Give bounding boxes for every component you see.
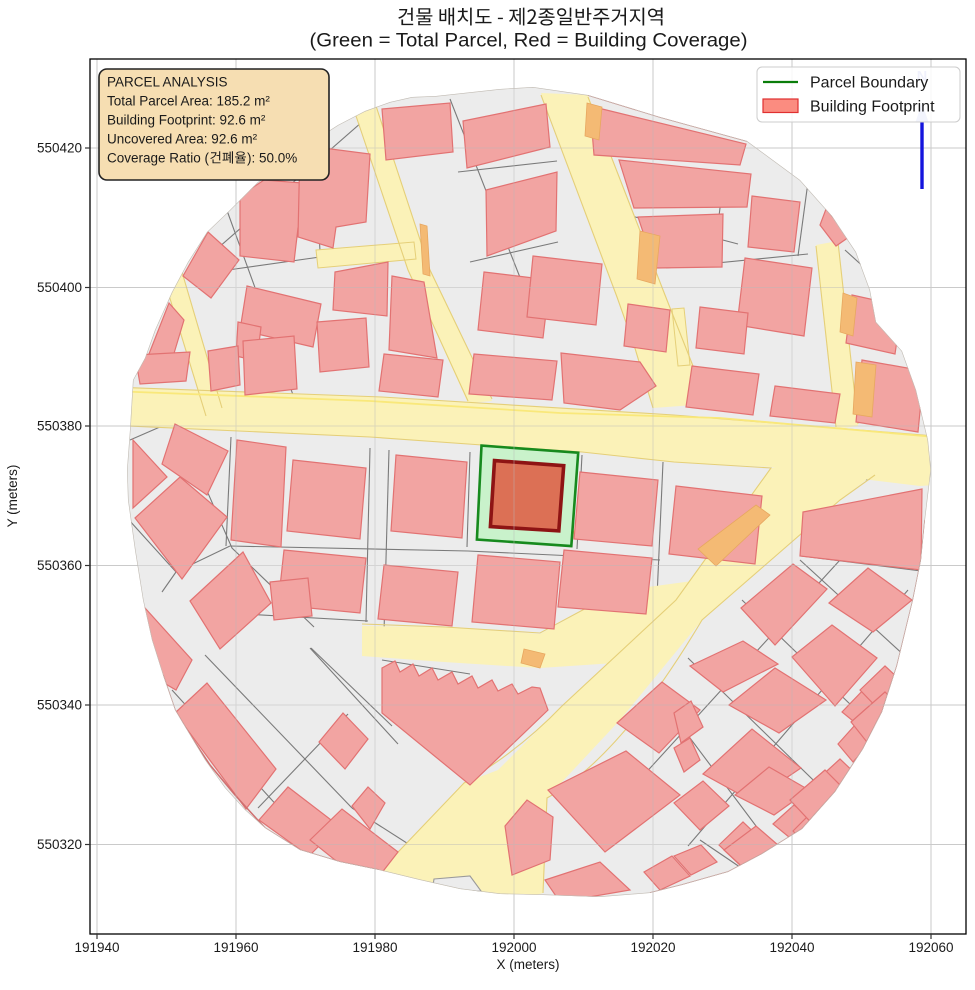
svg-text:550380: 550380 [37, 419, 82, 434]
svg-text:550320: 550320 [37, 837, 82, 852]
svg-text:Parcel Boundary: Parcel Boundary [810, 75, 928, 92]
svg-text:): 50.0%: ): 50.0% [247, 151, 297, 166]
svg-text:Y (meters): Y (meters) [5, 465, 20, 528]
svg-text:PARCEL ANALYSIS: PARCEL ANALYSIS [107, 75, 228, 90]
svg-text:X (meters): X (meters) [496, 957, 559, 972]
svg-text:192040: 192040 [769, 940, 814, 955]
svg-text:550420: 550420 [37, 141, 82, 156]
svg-text:191980: 191980 [352, 940, 397, 955]
svg-text:(Green = Total Parcel, Red = B: (Green = Total Parcel, Red = Building Co… [310, 30, 748, 52]
svg-text:191960: 191960 [213, 940, 258, 955]
svg-text:Total Parcel Area: 185.2 m²: Total Parcel Area: 185.2 m² [107, 94, 270, 109]
svg-text:550340: 550340 [37, 698, 82, 713]
svg-text:192020: 192020 [630, 940, 675, 955]
svg-text:191940: 191940 [74, 940, 119, 955]
svg-text:Coverage Ratio (: Coverage Ratio ( [107, 151, 210, 166]
svg-text:192060: 192060 [908, 940, 953, 955]
svg-text:550360: 550360 [37, 558, 82, 573]
svg-text:Building Footprint: Building Footprint [810, 99, 935, 116]
svg-text:Building Footprint: 92.6 m²: Building Footprint: 92.6 m² [107, 113, 266, 128]
svg-text:192000: 192000 [491, 940, 536, 955]
svg-text:550400: 550400 [37, 280, 82, 295]
svg-text:Uncovered Area: 92.6 m²: Uncovered Area: 92.6 m² [107, 132, 258, 147]
